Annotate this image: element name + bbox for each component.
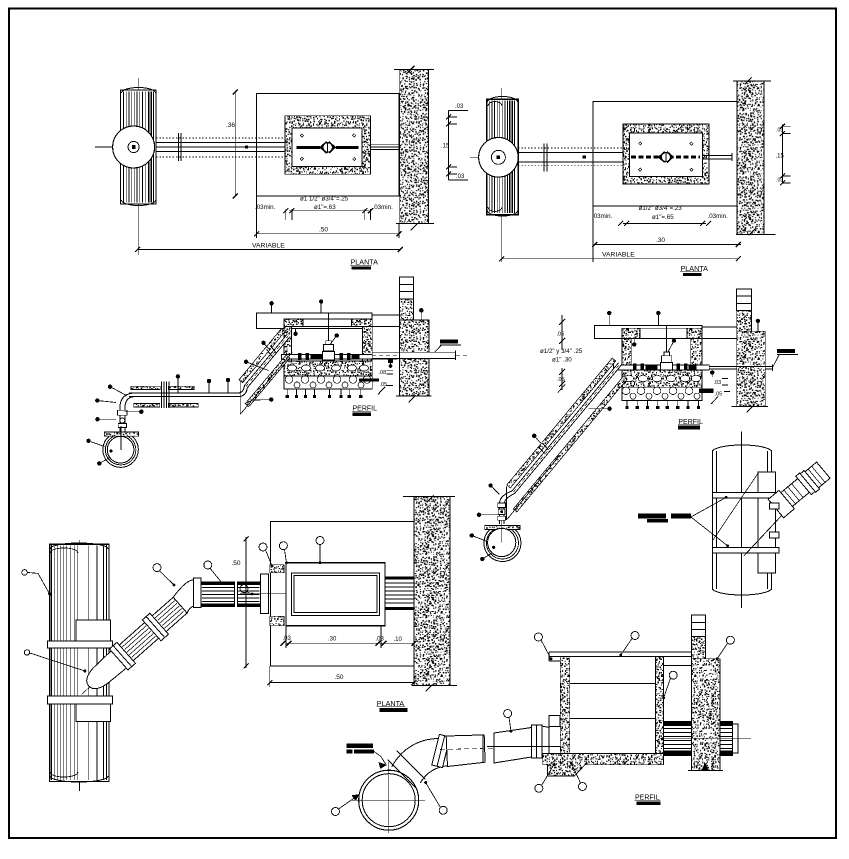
svg-text:.03: .03: [776, 178, 783, 184]
svg-text:.30: .30: [656, 237, 665, 244]
svg-text:.03: .03: [714, 380, 722, 386]
svg-text:.30: .30: [328, 637, 337, 643]
svg-text:.03min.: .03min.: [592, 213, 613, 220]
svg-text:.15: .15: [441, 144, 450, 150]
svg-text:ø1" .30: ø1" .30: [552, 357, 572, 364]
svg-text:.03: .03: [455, 104, 464, 110]
svg-text:ø1 1/2" ø3/4"=.25: ø1 1/2" ø3/4"=.25: [300, 195, 349, 202]
svg-text:ø1"=.65: ø1"=.65: [652, 214, 674, 221]
svg-text:.03: .03: [283, 636, 292, 642]
svg-text:.03min.: .03min.: [255, 204, 276, 211]
svg-text:.05: .05: [380, 382, 388, 388]
svg-text:.05: .05: [557, 377, 565, 383]
svg-text:.50: .50: [319, 227, 328, 234]
svg-text:ø1/2" y 3/4" .25: ø1/2" y 3/4" .25: [540, 348, 583, 355]
svg-text:.03: .03: [456, 174, 465, 180]
svg-text:.50: .50: [232, 560, 241, 567]
svg-text:.08: .08: [379, 370, 387, 376]
svg-text:.03: .03: [776, 128, 783, 134]
svg-text:.03min.: .03min.: [708, 213, 729, 220]
svg-text:.05: .05: [715, 392, 723, 398]
svg-text:ø1"=.63: ø1"=.63: [314, 204, 336, 211]
svg-text:.15: .15: [776, 154, 785, 160]
svg-text:.36: .36: [226, 122, 235, 129]
svg-text:.03min.: .03min.: [373, 204, 394, 211]
svg-text:VARIABLE: VARIABLE: [602, 252, 635, 259]
svg-text:.50: .50: [335, 674, 344, 681]
svg-text:.05: .05: [557, 332, 565, 338]
svg-text:VARIABLE: VARIABLE: [252, 243, 285, 250]
svg-text:ø1/2" ø3/4"=.23: ø1/2" ø3/4"=.23: [639, 205, 683, 212]
svg-text:.10: .10: [394, 637, 403, 643]
